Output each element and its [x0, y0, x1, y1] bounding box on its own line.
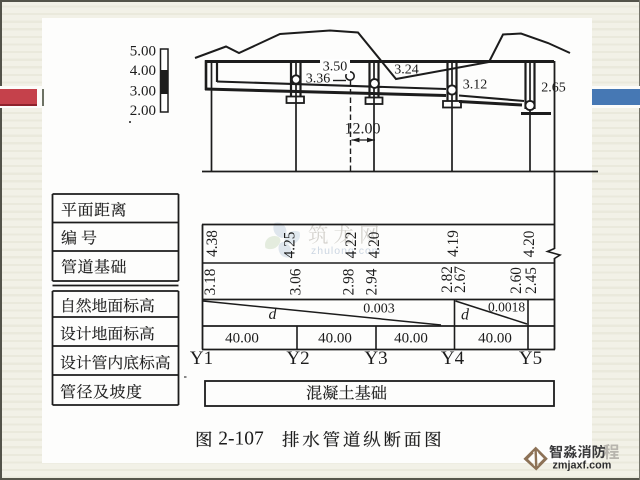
svg-text:zmjaxf.com: zmjaxf.com: [553, 460, 612, 472]
